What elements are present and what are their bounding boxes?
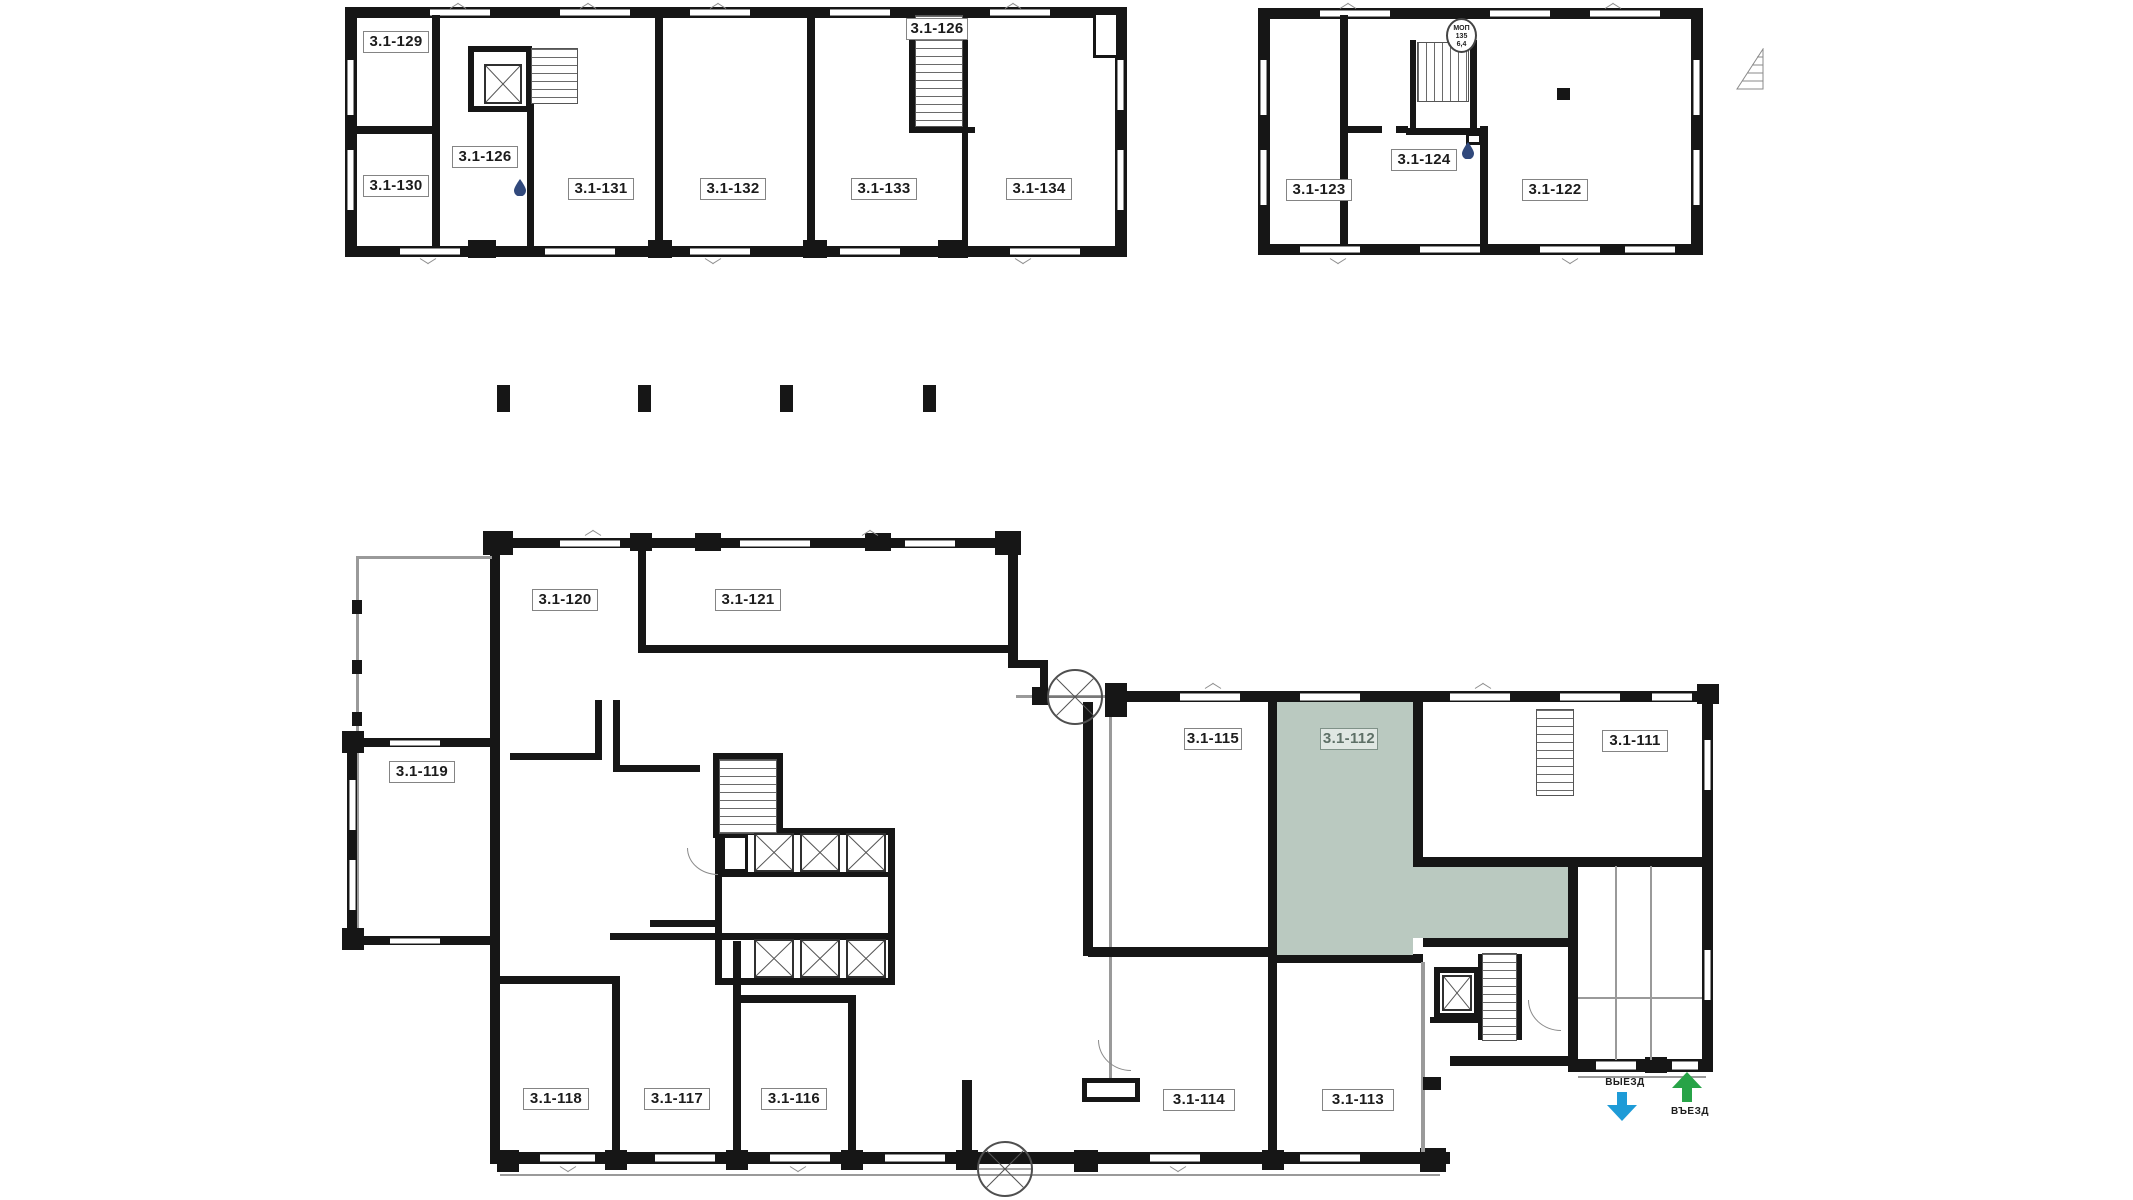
thin-line xyxy=(1650,866,1652,1060)
room-label-114[interactable]: 3.1-114 xyxy=(1163,1089,1235,1111)
window-segment xyxy=(1704,740,1711,790)
window-segment xyxy=(1450,693,1510,701)
wall xyxy=(638,548,646,652)
elevator-car-icon xyxy=(754,833,794,872)
wall xyxy=(650,920,718,927)
wall xyxy=(1340,15,1348,245)
room-label-129[interactable]: 3.1-129 xyxy=(363,31,429,53)
wall xyxy=(1557,88,1570,100)
unit-112-area[interactable] xyxy=(1413,867,1568,938)
water-drop-icon xyxy=(513,179,527,196)
room-label-120[interactable]: 3.1-120 xyxy=(532,589,598,611)
room-label-117[interactable]: 3.1-117 xyxy=(644,1088,710,1110)
wall xyxy=(1348,126,1382,133)
elevator-car-icon xyxy=(754,939,794,978)
wall xyxy=(1470,40,1477,133)
exit-label: ВЫЕЗД xyxy=(1597,1077,1653,1088)
window-segment xyxy=(740,540,810,547)
floor-plan: МОП 135 6,4 xyxy=(0,0,2133,1200)
window-chevron-icon xyxy=(585,527,601,536)
window-segment xyxy=(1117,150,1124,210)
thin-line xyxy=(1109,717,1112,1080)
window-segment xyxy=(1560,693,1620,701)
stairs-icon xyxy=(1537,710,1573,795)
wall xyxy=(352,660,362,674)
wall xyxy=(713,753,783,760)
wall xyxy=(638,645,1010,653)
window-segment xyxy=(1010,248,1080,255)
room-label-134[interactable]: 3.1-134 xyxy=(1006,178,1072,200)
stairs-icon xyxy=(720,760,776,833)
room-label-121[interactable]: 3.1-121 xyxy=(715,589,781,611)
wall xyxy=(1396,126,1408,133)
window-segment xyxy=(349,780,356,830)
wall xyxy=(1568,866,1578,1072)
wall xyxy=(612,976,620,1152)
wall xyxy=(1258,8,1270,255)
wall xyxy=(1413,857,1712,867)
window-chevron-icon xyxy=(1340,0,1356,9)
stairs-icon xyxy=(532,49,577,103)
elevator-car-icon xyxy=(846,833,886,872)
room-label-115[interactable]: 3.1-115 xyxy=(1184,728,1242,750)
wall xyxy=(490,976,618,984)
window-segment xyxy=(1625,246,1675,253)
water-drop-icon xyxy=(1461,142,1475,159)
wall xyxy=(648,240,672,258)
wall xyxy=(613,765,700,772)
wall xyxy=(1074,1150,1098,1172)
stamp-line2: 135 xyxy=(1448,33,1475,41)
wall xyxy=(1088,947,1273,957)
column-circle xyxy=(1047,669,1103,725)
window-segment xyxy=(1490,10,1550,17)
window-segment xyxy=(400,248,460,255)
wall xyxy=(468,240,496,258)
window-segment xyxy=(1260,60,1267,115)
thin-line xyxy=(1578,997,1702,999)
window-segment xyxy=(1260,150,1267,205)
window-chevron-icon xyxy=(1562,258,1578,267)
window-segment xyxy=(1672,1061,1698,1070)
window-chevron-icon xyxy=(1330,258,1346,267)
wall-niche xyxy=(1093,12,1119,58)
room-label-130[interactable]: 3.1-130 xyxy=(363,175,429,197)
window-segment xyxy=(560,9,630,16)
window-segment xyxy=(1652,693,1692,701)
window-chevron-icon xyxy=(1605,0,1621,9)
room-label-126b[interactable]: 3.1-126 xyxy=(906,18,968,40)
wall xyxy=(888,828,895,985)
wall xyxy=(776,758,783,838)
window-segment xyxy=(349,860,356,910)
wall xyxy=(342,928,364,950)
window-segment xyxy=(1180,693,1240,701)
window-chevron-icon xyxy=(705,258,721,267)
wall xyxy=(595,700,602,760)
wall xyxy=(1516,954,1522,1040)
window-chevron-icon xyxy=(710,0,726,9)
window-segment xyxy=(1300,693,1360,701)
elevator-car-icon xyxy=(484,64,522,104)
wall xyxy=(1268,702,1277,1161)
wall xyxy=(605,1150,627,1170)
room-label-133[interactable]: 3.1-133 xyxy=(851,178,917,200)
window-segment xyxy=(885,1154,945,1162)
wall xyxy=(432,15,440,246)
wall xyxy=(490,548,500,1152)
wall xyxy=(1450,1056,1578,1066)
room-label-122[interactable]: 3.1-122 xyxy=(1522,179,1588,201)
wall xyxy=(1277,954,1423,963)
window-segment xyxy=(540,1154,595,1162)
window-segment xyxy=(1693,60,1700,115)
room-label-123[interactable]: 3.1-123 xyxy=(1286,179,1352,201)
wall xyxy=(527,98,534,246)
window-chevron-icon xyxy=(450,0,466,9)
window-segment xyxy=(990,9,1050,16)
window-segment xyxy=(545,248,615,255)
door-arc xyxy=(687,848,718,875)
window-segment xyxy=(1693,150,1700,205)
wall xyxy=(962,1080,972,1154)
entrance-label: ВЪЕЗД xyxy=(1662,1106,1718,1117)
wall xyxy=(740,995,856,1003)
window-segment xyxy=(390,740,440,746)
room-label-132[interactable]: 3.1-132 xyxy=(700,178,766,200)
wall xyxy=(345,126,440,134)
window-segment xyxy=(347,60,354,115)
room-label-113[interactable]: 3.1-113 xyxy=(1322,1089,1394,1111)
stamp-line3: 6,4 xyxy=(1448,41,1475,49)
wall xyxy=(715,978,895,985)
window-segment xyxy=(690,9,750,16)
elevator-lobby xyxy=(722,835,748,872)
wall xyxy=(938,240,968,258)
window-segment xyxy=(1300,1154,1360,1162)
column-circle xyxy=(977,1141,1033,1197)
elevator-car-icon xyxy=(800,939,840,978)
ramp-icon xyxy=(1736,48,1764,90)
elevator-car-icon xyxy=(1442,975,1472,1011)
wall xyxy=(352,600,362,614)
window-segment xyxy=(1320,10,1390,17)
wall xyxy=(733,941,741,1152)
wall xyxy=(1105,683,1127,717)
room-label-118[interactable]: 3.1-118 xyxy=(523,1088,589,1110)
room-label-112-highlighted[interactable]: 3.1-112 xyxy=(1320,728,1378,750)
wall xyxy=(1413,702,1423,867)
window-segment xyxy=(1150,1154,1200,1162)
wall xyxy=(848,995,856,1152)
window-segment xyxy=(1117,60,1124,110)
window-chevron-icon xyxy=(1475,680,1491,689)
stamp-line1: МОП xyxy=(1448,25,1475,33)
wall xyxy=(1691,8,1703,255)
window-segment xyxy=(830,9,890,16)
window-chevron-icon xyxy=(1170,1166,1186,1175)
wall xyxy=(715,872,895,877)
window-segment xyxy=(1300,246,1360,253)
wall xyxy=(1645,1057,1667,1073)
window-segment xyxy=(905,540,955,547)
thin-line xyxy=(500,1174,1440,1176)
wall xyxy=(841,1150,863,1170)
wall xyxy=(347,738,357,945)
wall xyxy=(956,1150,978,1170)
wall xyxy=(638,385,651,412)
wall xyxy=(909,127,975,133)
entrance-arrow-icon xyxy=(1672,1074,1702,1103)
wall xyxy=(695,533,721,551)
wall xyxy=(497,385,510,412)
wall xyxy=(352,712,362,726)
room-label-111[interactable]: 3.1-111 xyxy=(1602,730,1668,752)
window-segment xyxy=(560,540,620,547)
room-label-131[interactable]: 3.1-131 xyxy=(568,178,634,200)
window-segment xyxy=(690,248,750,255)
window-chevron-icon xyxy=(1205,680,1221,689)
wall xyxy=(1083,702,1093,956)
wall xyxy=(1423,1077,1441,1090)
wall xyxy=(713,758,720,838)
window-chevron-icon xyxy=(862,527,878,536)
thin-line xyxy=(356,556,492,559)
room-label-119[interactable]: 3.1-119 xyxy=(389,761,455,783)
wall xyxy=(610,933,720,940)
window-segment xyxy=(1704,950,1711,1000)
wall xyxy=(1032,687,1048,705)
window-segment xyxy=(770,1154,830,1162)
exit-arrow-icon xyxy=(1607,1092,1637,1121)
door-arc xyxy=(1528,1000,1561,1031)
thin-line xyxy=(1615,866,1617,1060)
wall xyxy=(1410,40,1416,133)
room-label-116[interactable]: 3.1-116 xyxy=(761,1088,827,1110)
elevator-car-icon xyxy=(800,833,840,872)
window-chevron-icon xyxy=(790,1166,806,1175)
wall xyxy=(807,15,815,246)
wall xyxy=(497,1150,519,1172)
wall xyxy=(655,15,663,246)
window-segment xyxy=(840,248,900,255)
window-segment xyxy=(1540,246,1600,253)
wall xyxy=(803,240,827,258)
window-segment xyxy=(1590,10,1660,17)
stairs-icon xyxy=(1483,954,1516,1040)
wall xyxy=(613,700,620,772)
window-segment xyxy=(1420,246,1480,253)
wall xyxy=(1423,937,1568,947)
common-area-stamp: МОП 135 6,4 xyxy=(1446,18,1477,53)
window-segment xyxy=(1596,1061,1636,1070)
room-label-126[interactable]: 3.1-126 xyxy=(452,146,518,168)
window-chevron-icon xyxy=(560,1166,576,1175)
window-chevron-icon xyxy=(420,258,436,267)
wall xyxy=(923,385,936,412)
elevator-car-icon xyxy=(846,939,886,978)
door-arc xyxy=(1098,1040,1131,1071)
wall xyxy=(780,385,793,412)
entrance-porch xyxy=(1082,1078,1140,1102)
window-chevron-icon xyxy=(1015,258,1031,267)
window-segment xyxy=(655,1154,715,1162)
room-label-124[interactable]: 3.1-124 xyxy=(1391,149,1457,171)
window-segment xyxy=(347,150,354,210)
window-chevron-icon xyxy=(1005,0,1021,9)
thin-line xyxy=(1421,962,1425,1152)
wall xyxy=(726,1150,748,1170)
window-segment xyxy=(390,938,440,944)
window-chevron-icon xyxy=(580,0,596,9)
wall xyxy=(342,731,364,753)
wall xyxy=(510,753,600,760)
